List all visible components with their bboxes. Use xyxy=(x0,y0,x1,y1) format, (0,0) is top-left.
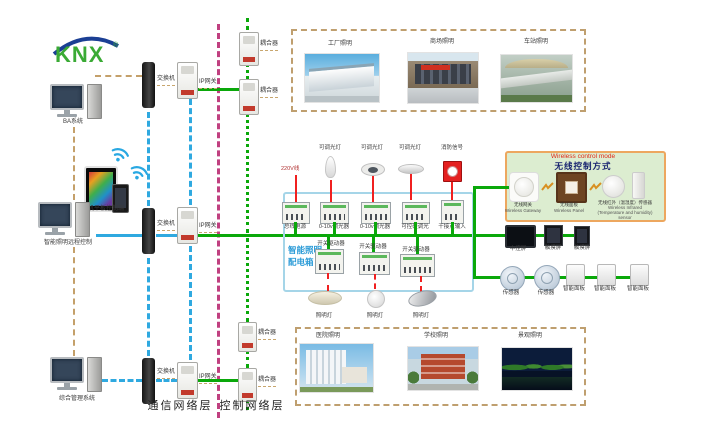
wireless-sensor-icon xyxy=(602,175,625,198)
management-bus-line xyxy=(73,127,75,200)
knx-trunk-line xyxy=(246,350,249,368)
bus-stub xyxy=(374,222,377,234)
photo-label: 车站照明 xyxy=(524,39,548,47)
wireless-device-label-en: Wireless Gateway xyxy=(505,208,541,213)
wireless-title-en: Wireless control mode xyxy=(551,153,615,160)
device-label: 传感器 xyxy=(503,290,520,297)
ethernet-line xyxy=(96,234,142,237)
ethernet-switch-device xyxy=(142,358,155,404)
fire-signal-label: 消防信号 xyxy=(441,145,463,152)
touch-screen-icon xyxy=(544,225,563,246)
lamp-label: 可调光灯 xyxy=(399,145,421,152)
bus-stub xyxy=(414,222,417,234)
wireless-title-cn: 无线控制方式 xyxy=(554,160,611,172)
photo-landscape-lighting xyxy=(502,348,572,390)
coupler-label: 耦合器 xyxy=(260,41,278,51)
management-system-label: 综合管理系统 xyxy=(59,396,95,404)
dimmable-downlight-icon xyxy=(361,163,385,176)
dimmable-lamp-icon xyxy=(325,156,336,178)
module-label: 开关驱动器 xyxy=(402,247,430,254)
device-label: 智能面板 xyxy=(563,286,585,293)
switch-label: 交换机 xyxy=(157,369,175,379)
remote-control-computer-icon xyxy=(38,202,90,240)
wireless-gateway-icon xyxy=(509,172,539,202)
remote-control-label: 智能照明远程控制 xyxy=(44,240,92,248)
photo-mall-lighting xyxy=(408,53,478,103)
cabinet-title-line2: 配电箱 xyxy=(288,257,314,268)
smart-panel-icon xyxy=(566,264,585,286)
power-input-label: 220V线 xyxy=(281,166,299,173)
photo-label: 商场照明 xyxy=(430,39,454,47)
knx-trunk-line xyxy=(246,64,249,79)
lamp-label: 照明灯 xyxy=(413,313,430,320)
device-label: 中控屏 xyxy=(510,246,527,253)
dry-contact-input-module xyxy=(441,200,464,224)
ba-computer-icon xyxy=(50,84,102,122)
coupler-device xyxy=(238,368,257,402)
switch-actuator-module xyxy=(400,254,435,277)
bus-stub xyxy=(333,222,336,234)
fire-alarm-icon xyxy=(443,161,462,182)
knx-branch-bus-line xyxy=(473,186,476,279)
switch-actuator-module xyxy=(359,252,390,275)
bus-power-module xyxy=(282,202,310,224)
device-label: 智能面板 xyxy=(594,286,616,293)
ethernet-line xyxy=(102,379,142,382)
wireless-sensor-icon xyxy=(632,172,645,199)
lamp-label: 可调光灯 xyxy=(361,145,383,152)
sensor-icon xyxy=(500,266,525,291)
control-layer-label: 控制网络层 xyxy=(220,400,285,414)
lamp-wire xyxy=(420,276,422,292)
ip-gateway-device xyxy=(177,362,198,399)
thyristor-dimmer-module xyxy=(402,202,430,224)
lamp-wire xyxy=(327,273,329,291)
fire-signal-wire xyxy=(451,182,453,200)
module-label: 开关驱动器 xyxy=(359,244,387,251)
ba-system-label: BA系统 xyxy=(63,119,83,127)
gateway-chain-line xyxy=(189,246,192,360)
lamp-wire xyxy=(410,174,412,200)
switch-label: 交换机 xyxy=(157,221,175,231)
knx-lighting-system-diagram: KNX ® 工厂照明 商场照明 车站照明 医院照明 学校照明 景观照明 xyxy=(0,0,715,443)
ip-gateway-device xyxy=(177,207,198,244)
management-bus-line xyxy=(73,247,75,356)
wireless-signal-icon xyxy=(541,181,555,193)
lamp-label: 照明灯 xyxy=(367,313,384,320)
switch-chain-line xyxy=(147,112,150,206)
lamp-label: 照明灯 xyxy=(316,313,333,320)
communication-layer-label: 通信网络层 xyxy=(148,400,213,414)
touch-screen-icon xyxy=(574,226,590,246)
ip-gateway-label: IP网关 xyxy=(199,79,217,89)
ceiling-light-icon xyxy=(308,291,342,305)
switch-chain-line xyxy=(147,258,150,356)
gateway-chain-line xyxy=(189,99,192,205)
ethernet-switch-device xyxy=(142,62,155,108)
device-label: 智能面板 xyxy=(627,286,649,293)
dimmer-module xyxy=(320,202,349,224)
wifi-icon xyxy=(108,143,132,165)
device-label: 触摸屏 xyxy=(545,245,562,252)
coupler-device xyxy=(238,322,257,352)
photo-school-lighting xyxy=(408,347,478,390)
lamp-wire xyxy=(374,274,376,289)
switch-label: 交换机 xyxy=(157,76,175,86)
central-screen-icon xyxy=(505,225,536,248)
ip-gateway-label: IP网关 xyxy=(199,374,217,384)
power-line xyxy=(295,175,297,202)
coupler-device xyxy=(239,79,259,115)
bus-stub xyxy=(294,222,297,234)
device-label: 传感器 xyxy=(538,290,555,297)
photo-station-lighting xyxy=(501,55,572,102)
knx-trunk-line xyxy=(246,18,249,30)
network-layer-divider-line xyxy=(217,24,220,418)
smart-panel-icon xyxy=(597,264,616,286)
photo-factory-lighting xyxy=(305,54,379,102)
dimmable-ceiling-lamp-icon xyxy=(398,164,424,174)
knx-trunk-line xyxy=(246,238,249,322)
photo-label: 景观照明 xyxy=(518,333,542,341)
ethernet-line xyxy=(156,379,177,382)
ethernet-switch-device xyxy=(142,208,155,254)
coupler-label: 耦合器 xyxy=(258,330,276,340)
coupler-label: 耦合器 xyxy=(258,377,276,387)
module-label: 开关驱动器 xyxy=(317,241,345,248)
sensor-icon xyxy=(534,265,560,291)
knx-trunk-line xyxy=(246,113,249,233)
photo-label: 学校照明 xyxy=(424,333,448,341)
wireless-device-label-en: Wireless Panel xyxy=(554,208,584,213)
ip-gateway-device xyxy=(177,62,198,99)
knx-branch-line xyxy=(473,186,512,189)
management-bus-line xyxy=(95,75,142,77)
lamp-wire xyxy=(372,176,374,202)
wireless-signal-icon xyxy=(589,181,603,193)
coupler-label: 耦合器 xyxy=(260,88,278,98)
switch-actuator-module xyxy=(315,249,344,274)
lamp-wire xyxy=(330,180,332,202)
bulb-light-icon xyxy=(367,290,385,308)
ip-gateway-label: IP网关 xyxy=(199,223,217,233)
photo-label: 医院照明 xyxy=(316,333,340,341)
ethernet-line xyxy=(156,234,177,237)
coupler-device xyxy=(239,32,259,66)
knx-logo-reg: ® xyxy=(113,42,118,49)
photo-hospital-lighting xyxy=(300,344,373,392)
wireless-device-label-en: Wireless Infrared (Temperature and humid… xyxy=(594,205,656,221)
photo-label: 工厂照明 xyxy=(328,41,352,49)
dimmer-module xyxy=(361,202,391,224)
management-computer-icon xyxy=(50,357,102,395)
bus-stub xyxy=(451,222,454,234)
wireless-panel-icon xyxy=(556,172,587,203)
device-label: 触摸屏 xyxy=(574,245,591,252)
lamp-label: 可调光灯 xyxy=(319,145,341,152)
smart-panel-icon xyxy=(630,264,649,286)
knx-logo: KNX xyxy=(55,42,104,68)
